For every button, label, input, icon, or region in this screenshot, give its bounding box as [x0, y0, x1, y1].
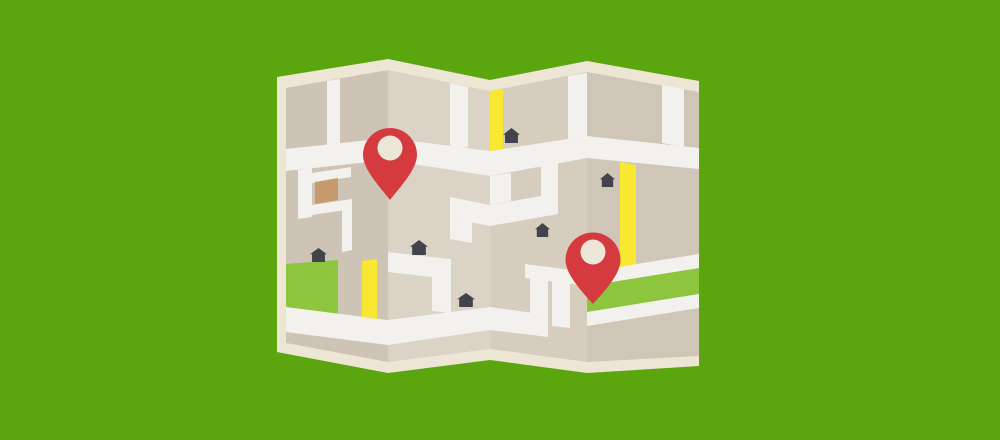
folded-map-svg [0, 0, 1000, 440]
park-block-panel1 [286, 260, 338, 314]
location-pin-icon-2-hole [581, 240, 606, 265]
map-hero-illustration [0, 0, 1000, 440]
vertical-street-panel2 [432, 257, 451, 313]
yellow-road-panel1 [362, 259, 377, 319]
side-street-d-panel1 [342, 207, 352, 252]
brown-building-panel1 [315, 178, 338, 204]
valley-connector-road [490, 173, 511, 205]
top-vertical-road-panel4 [662, 85, 684, 147]
mid-street-riser-panel3 [541, 163, 558, 199]
top-vertical-road-panel2 [450, 83, 468, 149]
location-pin-icon-1-hole [378, 136, 403, 161]
top-vertical-road-panel3 [568, 73, 587, 139]
yellow-road-panel4 [620, 162, 636, 267]
stub-street-panel3 [552, 281, 570, 328]
top-vertical-road-panel1 [327, 79, 340, 148]
step-street-panel3 [530, 276, 548, 315]
mid-street-stub-panel2 [450, 218, 472, 243]
yellow-road-panel3 [490, 89, 503, 151]
side-street-a-panel1 [298, 168, 312, 219]
